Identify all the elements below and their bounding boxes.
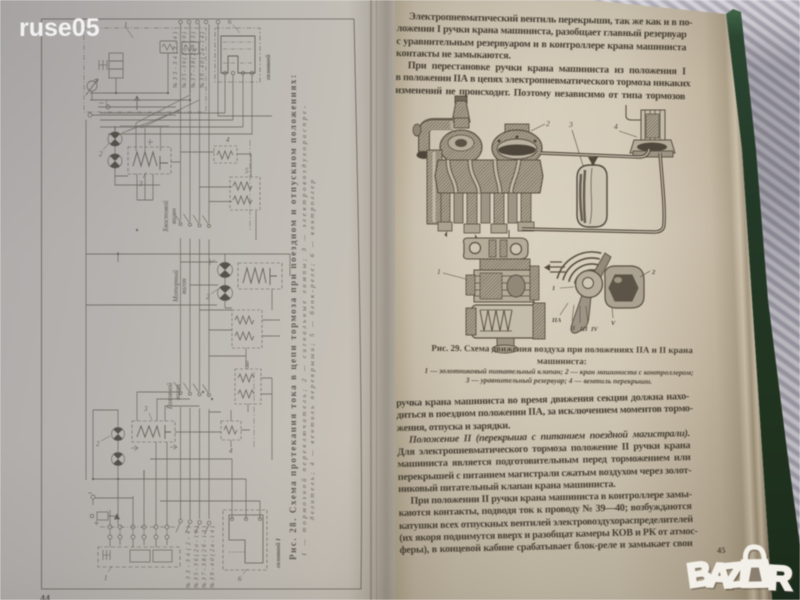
svg-text:головной: головной (265, 54, 272, 80)
svg-text:№33-34(2-4): №33-34(2-4) (185, 526, 192, 589)
svg-text:вагон: вагон (181, 278, 188, 294)
svg-text:2: 2 (206, 293, 210, 301)
svg-text:1: 1 (104, 574, 108, 582)
svg-text:1: 1 (552, 285, 555, 292)
svg-text:вагон: вагон (171, 208, 178, 224)
svg-text:R: R (767, 560, 793, 598)
svg-text:1: 1 (124, 21, 128, 29)
svg-text:1 — тормозной переключатель; 2: 1 — тормозной переключатель; 2 — сигналь… (301, 106, 308, 556)
svg-text:6: 6 (238, 575, 242, 583)
svg-text:5: 5 (245, 167, 249, 175)
svg-text:3: 3 (143, 405, 148, 413)
svg-text:№39-40(2в-14): №39-40(2в-14) (199, 32, 206, 89)
svg-text:№35-36(2а-10): №35-36(2а-10) (181, 32, 188, 89)
svg-text:№39-40(2в-14): №39-40(2в-14) (209, 526, 216, 589)
svg-text:№33-34(2-4): №33-34(2-4) (172, 32, 179, 89)
svg-text:2: 2 (96, 440, 100, 448)
svg-text:IV: IV (590, 326, 599, 333)
svg-text:Хвостовой: Хвостовой (163, 200, 170, 233)
svg-text:IIА: IIА (551, 317, 562, 324)
svg-text:3: 3 (568, 120, 573, 129)
svg-text:№37-38(2б-13): №37-38(2б-13) (201, 526, 208, 589)
svg-text:4: 4 (226, 136, 230, 144)
svg-text:3: 3 (138, 180, 143, 188)
svg-text:2: 2 (546, 119, 550, 128)
svg-text:№35-36(2а-10): №35-36(2а-10) (193, 526, 200, 589)
svg-text:головной I: головной I (275, 538, 282, 568)
svg-text:1: 1 (437, 267, 441, 276)
svg-text:III: III (579, 326, 588, 333)
svg-text:Моторный: Моторный (173, 269, 180, 303)
svg-text:Рис. 28. Схема протекания тока: Рис. 28. Схема протекания тока в цепи то… (288, 75, 298, 560)
svg-text:4: 4 (614, 122, 618, 131)
svg-text:II: II (569, 325, 576, 332)
svg-text:4: 4 (229, 447, 233, 455)
svg-text:6: 6 (228, 18, 232, 26)
svg-text:делитель; 4 — вентиль перекрыш: делитель; 4 — вентиль перекрыши; 5 — бло… (309, 179, 316, 520)
svg-text:2: 2 (651, 269, 656, 276)
svg-text:5: 5 (245, 360, 249, 368)
svg-text:V: V (611, 320, 616, 327)
svg-text:№37-38(2б-13): №37-38(2б-13) (190, 32, 197, 89)
svg-text:2: 2 (99, 150, 103, 158)
